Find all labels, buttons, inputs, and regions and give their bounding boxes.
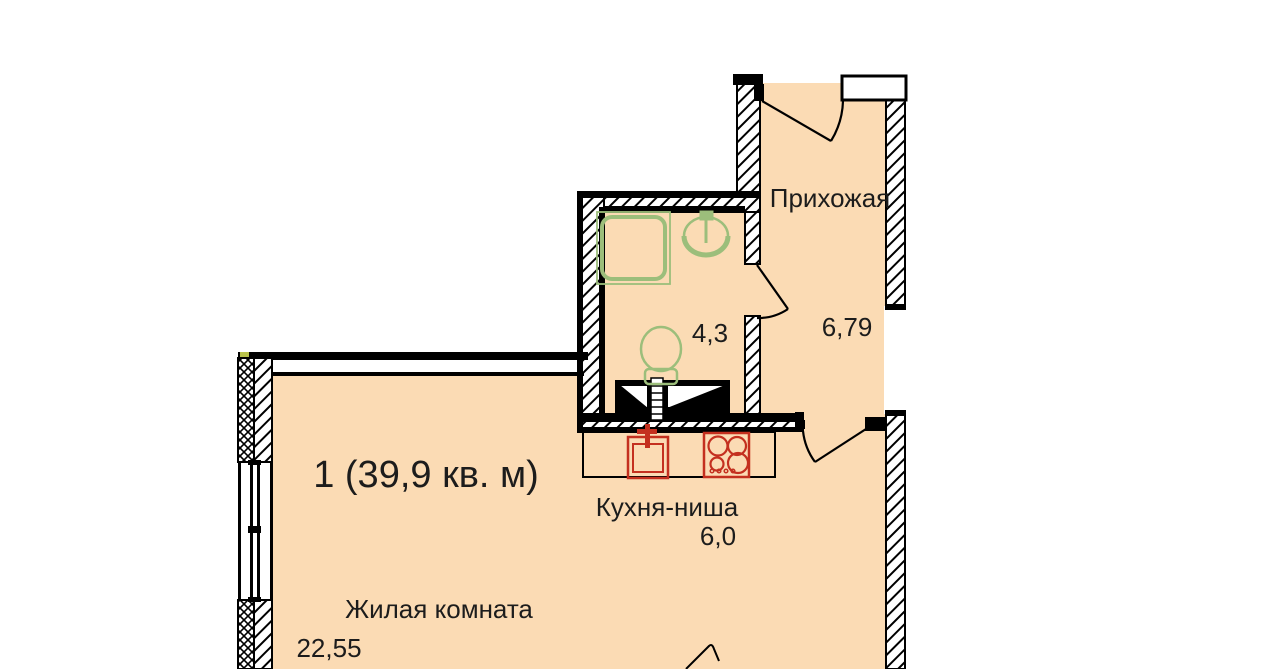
room-label-kitchen: Кухня-ниша xyxy=(596,494,738,520)
room-area-kitchen: 6,0 xyxy=(700,523,736,549)
room-label-hallway: Прихожая xyxy=(770,185,890,211)
floor-plan-drawing xyxy=(0,0,1280,669)
room-area-hallway: 6,79 xyxy=(822,314,873,340)
left-wall xyxy=(238,358,272,669)
floor-plan: 1 (39,9 кв. м) Прихожая 6,79 4,3 Кухня-н… xyxy=(0,0,1280,669)
room-label-living: Жилая комната xyxy=(345,596,533,622)
room-area-living: 22,55 xyxy=(296,635,361,661)
apartment-title: 1 (39,9 кв. м) xyxy=(313,456,539,494)
room-area-bathroom: 4,3 xyxy=(692,320,728,346)
window xyxy=(238,460,273,602)
